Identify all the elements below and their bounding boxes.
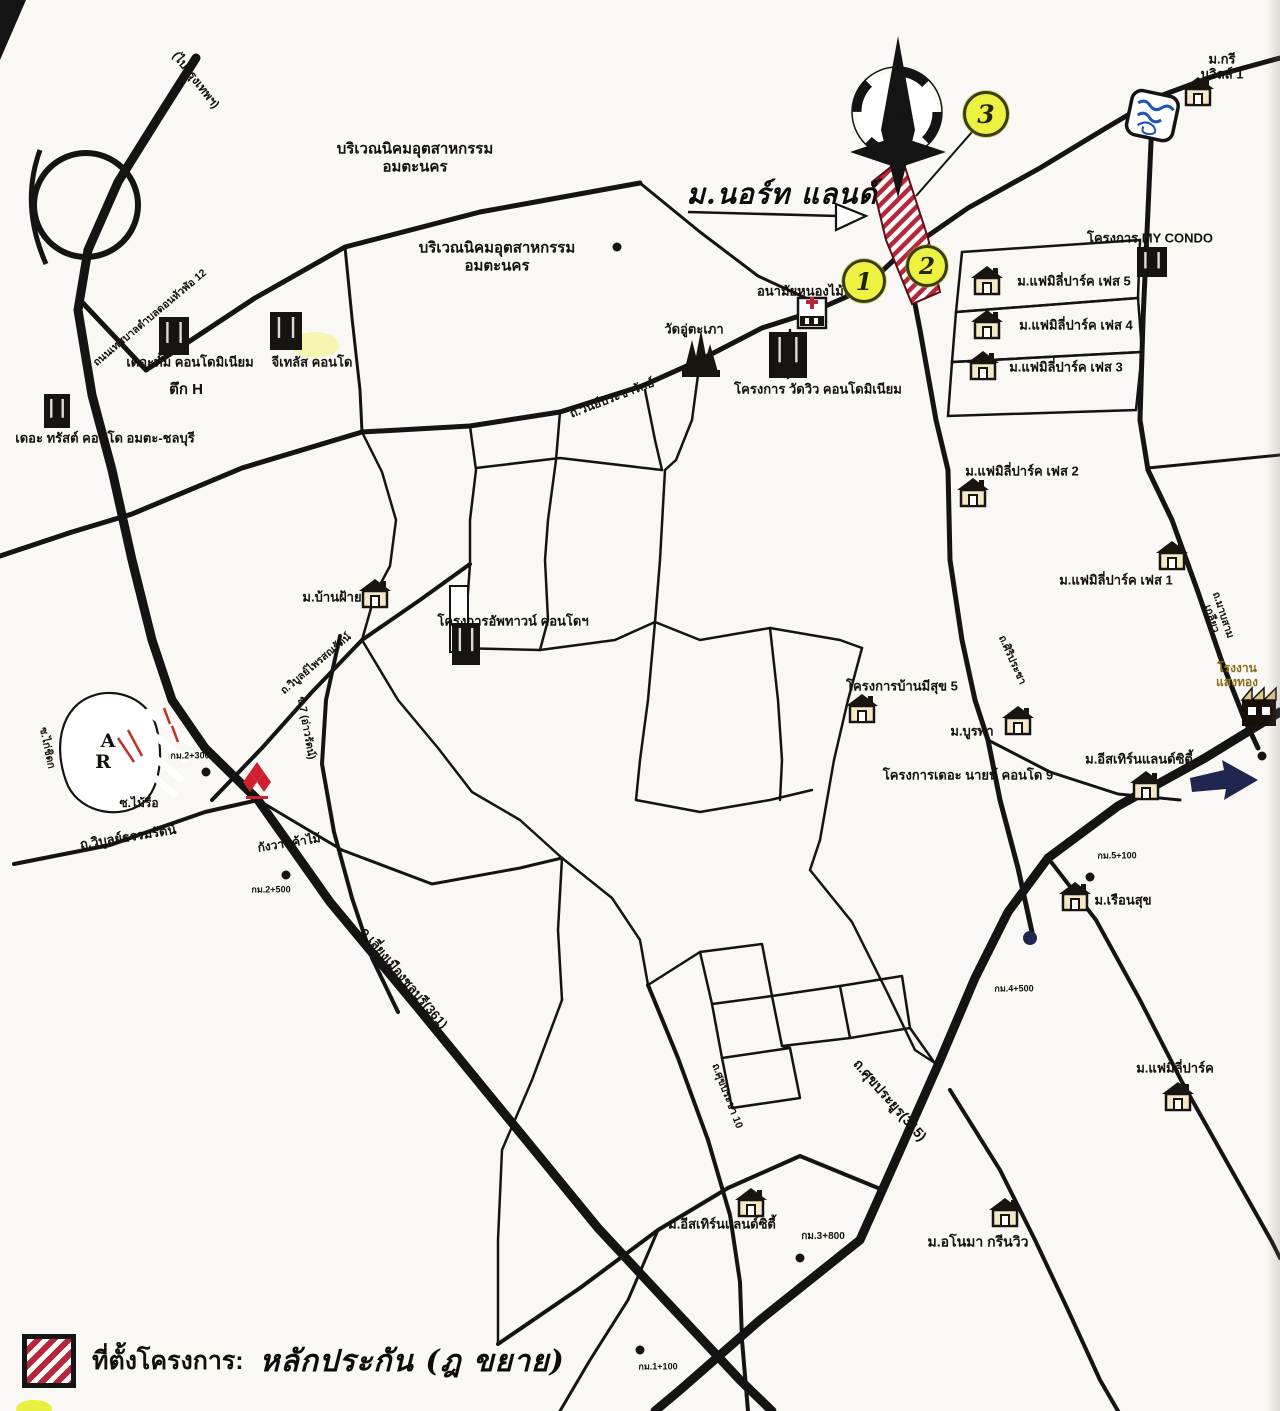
road [700, 944, 772, 1004]
family-park-3-label: ม.แฟมิลี่ปาร์ค เฟส 3 [1009, 359, 1123, 374]
building-icon [452, 623, 480, 665]
km-marker-dot [796, 1254, 805, 1263]
road [636, 790, 812, 812]
road [950, 1090, 1118, 1411]
house-icon [359, 579, 391, 607]
yellow-smudge-legend [16, 1400, 52, 1411]
road [362, 432, 396, 640]
house-icon [1002, 706, 1034, 734]
navy-marker-dot [1023, 931, 1037, 945]
km-4-500-label: กม.4+500 [994, 984, 1033, 995]
g-plus-condo-label: จีเทลัส คอนโด [272, 354, 353, 369]
burapha-label: ม.บูรพา [950, 723, 993, 738]
saeng-thong-factory-label: โรงงานแสงทอง [1216, 661, 1259, 689]
ruen-suk-label: ม.เรือนสุข [1094, 892, 1151, 907]
compass-rose-icon: N [850, 36, 946, 198]
the-thum-condo-label: เดอะทั้ม คอนโดมิเนียม [126, 354, 253, 369]
compass-north-label: N [891, 104, 903, 123]
wat-u-taphao-label: วัดอู่ตะเภา [664, 321, 723, 336]
the-nine-condo-9-label: โครงการเดอะ นายน์ คอนโด 9 [883, 767, 1053, 782]
family-park-1-label: ม.แฟมิลี่ปาร์ค เฟส 1 [1059, 572, 1173, 587]
house-icon [1130, 771, 1162, 799]
road [770, 628, 782, 800]
road [1148, 455, 1280, 468]
marker-number: 2 [919, 253, 935, 280]
road [840, 976, 910, 1038]
green-ville-1-label: ม.กรีนวิลล์ 1 [1193, 52, 1251, 83]
building-icon [1137, 247, 1167, 277]
industrial-estate-2-label: บริเวณนิคมอุตสาหกรรม อมตะนคร [419, 239, 576, 274]
family-park-bottom-right-label: ม.แฟมิลี่ปาร์ค [1136, 1060, 1214, 1075]
km-1-100-label: กม.1+100 [638, 1362, 677, 1373]
family-park-5-label: ม.แฟมิลี่ปาร์ค เฟส 5 [1017, 273, 1131, 288]
eastern-land-city-1-label: ม.อีสเทิร์นแลนด์ซิตี้ [1085, 751, 1193, 766]
baan-mee-suk-5-label: โครงการบ้านมีสุข 5 [846, 678, 958, 693]
road [345, 247, 362, 432]
house-icon [735, 1188, 767, 1216]
legend-printed-text: ที่ตั้งโครงการ: [92, 1341, 244, 1381]
family-park-4-label: ม.แฟมิลี่ปาร์ค เฟส 4 [1019, 317, 1133, 332]
km-marker-dot [636, 1346, 645, 1355]
health-center-icon [798, 297, 826, 328]
direction-arrow-icon [1190, 760, 1258, 800]
marker3-leader-line [916, 132, 972, 196]
road [476, 458, 662, 470]
highlight-marker-3: 3 [963, 91, 1009, 137]
km-5-100-label: กม.5+100 [1097, 851, 1136, 862]
house-icon [967, 351, 999, 379]
km-marker-dot [1086, 873, 1095, 882]
road [560, 1230, 658, 1411]
road [1140, 120, 1258, 748]
soi-mai-rue-label: ซ.ไม้รื่อ [119, 796, 158, 810]
house-icon [971, 310, 1003, 338]
km-3-800-label: กม.3+800 [801, 1231, 845, 1243]
legend: ที่ตั้งโครงการ: หลักประกัน (ฎ ขยาย) [22, 1334, 565, 1388]
building-icon [44, 394, 70, 428]
tower-h-label: ตึก H [169, 381, 203, 399]
building-icon [159, 317, 189, 355]
eastern-land-city-2-label: ม.อีสเทิร์นแลนด์ซิตี้ [668, 1216, 776, 1231]
road-network [0, 58, 1280, 1411]
km-marker-dot [282, 871, 291, 880]
letter-a-label: A [101, 730, 116, 752]
road [562, 858, 648, 985]
km-marker-dot [1258, 752, 1267, 761]
km-marker-dot [202, 768, 211, 777]
road [810, 870, 938, 1065]
building-icon [270, 312, 302, 350]
legend-handwritten-text: หลักประกัน (ฎ ขยาย) [260, 1338, 565, 1385]
poi-icons [44, 77, 1267, 1355]
road [362, 640, 562, 858]
road [648, 952, 700, 985]
road [1048, 858, 1280, 1258]
road [645, 390, 662, 470]
road [558, 858, 562, 1000]
road [772, 986, 850, 1046]
ban-fai-label: ม.บ้านฝ้าย [302, 589, 361, 604]
north-land-annotation-label: ม.นอร์ท แลนด์ [687, 177, 878, 210]
house-icon [1162, 1082, 1194, 1110]
letter-r-label: R [95, 751, 111, 773]
industrial-estate-1-label: บริเวณนิคมอุตสาหกรรม อมตะนคร [337, 140, 494, 175]
legend-site-swatch [22, 1334, 76, 1388]
house-icon [846, 694, 878, 722]
km-marker-dot [613, 243, 622, 252]
km-2-300-label: กม.2+300 [170, 751, 209, 762]
marker-number: 1 [856, 267, 873, 296]
building-icon [769, 332, 807, 378]
highlight-marker-2: 2 [906, 245, 948, 287]
map-drawing: N [0, 0, 1280, 1411]
wat-view-condo-label: โครงการ วัดวิว คอนโดมิเนียม [734, 381, 902, 396]
road [0, 258, 896, 556]
house-icon [971, 266, 1003, 294]
scanned-location-map: N [0, 0, 1280, 1411]
family-park-2-label: ม.แฟมิลี่ปาร์ค เฟส 2 [965, 463, 1079, 478]
scan-corner-artifact [0, 0, 26, 60]
pond-icon [1125, 89, 1180, 143]
highlight-marker-1: 1 [842, 259, 886, 303]
road [636, 622, 655, 800]
anoma-green-view-label: ม.อโนมา กรีนวิว [928, 1234, 1029, 1251]
road [655, 622, 862, 648]
uptown-condo-label: โครงการอัพทาวน์ คอนโดฯ [437, 613, 588, 628]
house-icon [957, 478, 989, 506]
the-trust-condo-label: เดอะ ทรัสต์ คอนโด อมตะ-ชลบุรี [15, 430, 194, 445]
road [896, 58, 1280, 258]
my-condo-label: โครงการ MY CONDO [1087, 230, 1213, 245]
factory-icon [1242, 688, 1276, 726]
road [498, 1156, 878, 1344]
house-icon [1059, 882, 1091, 910]
km-2-500-label: กม.2+500 [251, 885, 290, 896]
marker-number: 3 [977, 100, 994, 129]
road [655, 360, 700, 622]
